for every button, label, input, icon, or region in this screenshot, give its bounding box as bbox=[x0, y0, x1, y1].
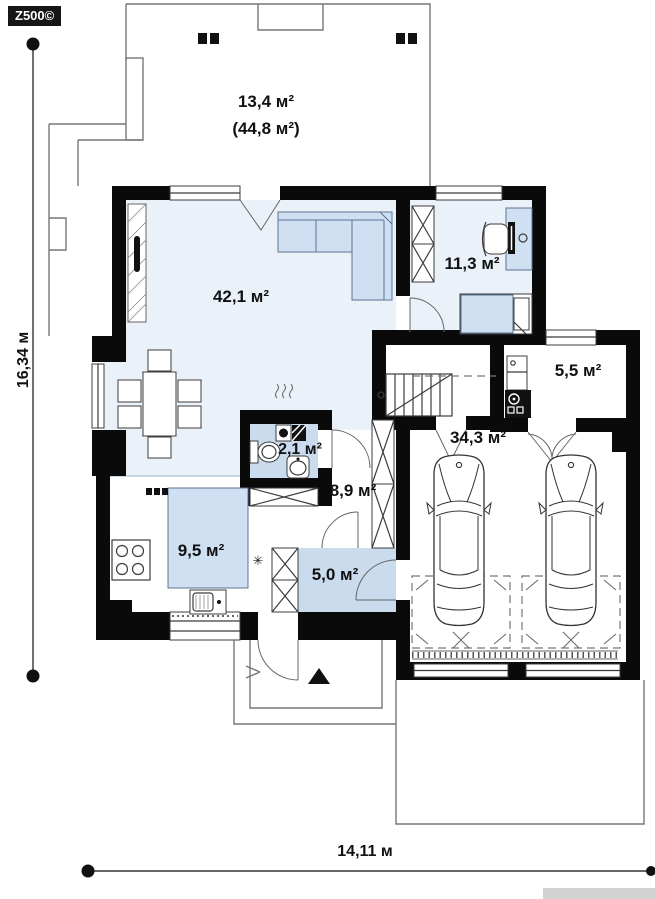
hall-vestibule-door bbox=[322, 512, 358, 548]
snowflake-icon: ✳ bbox=[253, 553, 264, 569]
car-icon bbox=[539, 455, 603, 626]
staircase bbox=[378, 374, 496, 416]
room-label-boiler-room: 5,5 м² bbox=[555, 361, 602, 381]
boiler-room-window bbox=[546, 330, 596, 345]
bay-window bbox=[92, 364, 104, 428]
counter-vents bbox=[146, 488, 168, 495]
furnace-icon bbox=[505, 390, 531, 418]
room-label-kitchen: 9,5 м² bbox=[178, 541, 225, 561]
porch bbox=[234, 640, 396, 724]
bathroom-door bbox=[332, 430, 370, 468]
sink-icon bbox=[287, 456, 309, 478]
washing-machine-icon bbox=[276, 425, 306, 441]
bed bbox=[460, 294, 532, 334]
tv-icon bbox=[134, 236, 140, 272]
kitchen-sink-icon bbox=[190, 590, 226, 614]
bedroom-wardrobe bbox=[412, 206, 434, 282]
floor-plan-canvas: Z500© 13,4 м² (44,8 м²) 42,1 м² 11,3 м² … bbox=[0, 0, 655, 899]
room-label-garage: 34,3 м² bbox=[450, 428, 506, 448]
bottom-gray-strip bbox=[543, 888, 655, 899]
front-entrance-door bbox=[258, 640, 298, 680]
kitchen-island bbox=[168, 488, 248, 588]
room-label-bathroom: 2,1 м² bbox=[278, 441, 322, 459]
floor-plan-drawing bbox=[0, 0, 655, 899]
driveway bbox=[396, 680, 644, 824]
dimension-label-width: 14,11 м bbox=[337, 843, 392, 861]
dimension-label-height: 16,34 м bbox=[15, 332, 33, 388]
car-icon bbox=[427, 455, 491, 626]
room-label-living-room: 42,1 м² bbox=[213, 287, 269, 307]
bedroom-window bbox=[436, 186, 502, 200]
terrace-columns bbox=[198, 33, 417, 44]
garage-floor-strip bbox=[412, 651, 618, 659]
room-label-vestibule: 5,0 м² bbox=[312, 565, 359, 585]
stove-icon bbox=[112, 540, 150, 580]
room-label-terrace-total: (44,8 м²) bbox=[232, 119, 299, 139]
entrance-arrow-icon bbox=[308, 668, 330, 684]
room-label-bedroom: 11,3 м² bbox=[444, 254, 499, 274]
living-room-window bbox=[170, 186, 240, 200]
storage-closet bbox=[250, 488, 318, 506]
desk bbox=[506, 208, 532, 270]
room-label-terrace-area: 13,4 м² bbox=[238, 92, 294, 112]
z500-logo: Z500© bbox=[8, 6, 61, 26]
dimension-line-horizontal bbox=[82, 865, 655, 878]
office-chair bbox=[483, 222, 509, 256]
fireplace bbox=[128, 204, 146, 322]
room-label-hall: 8,9 м² bbox=[330, 481, 377, 501]
kitchen-window bbox=[170, 612, 240, 640]
boiler-unit bbox=[505, 356, 531, 418]
toilet-icon bbox=[250, 441, 280, 463]
vestibule-wardrobe bbox=[272, 548, 298, 612]
